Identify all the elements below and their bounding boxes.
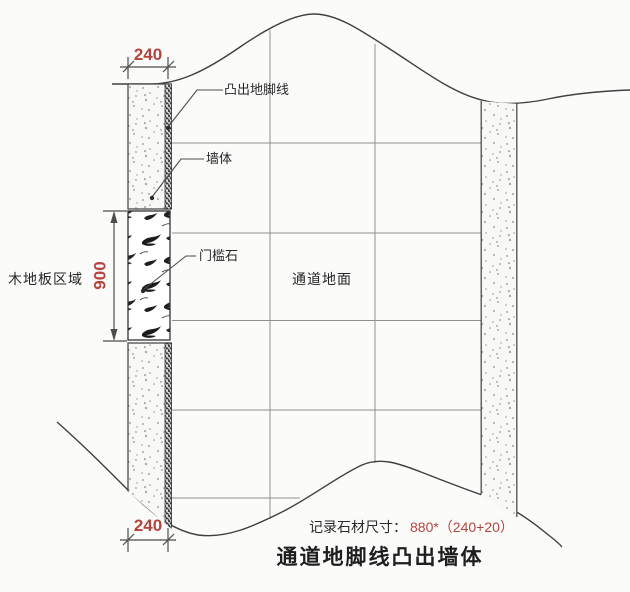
- skirting-strip-lower: [165, 343, 172, 527]
- skirting-strip-upper: [165, 84, 172, 209]
- stone-size-note: 记录石材尺寸： 880*（240+20）: [309, 517, 514, 537]
- cad-drawing-canvas: 240 240 900 凸出地脚线 墙体 门槛石 通道地面 木地板区域 记录石材…: [0, 0, 630, 592]
- dimension-top-value: 240: [125, 46, 171, 63]
- label-wall: 墙体: [206, 152, 232, 166]
- drawing-linework: [0, 0, 630, 592]
- dimension-height-value: 900: [92, 256, 109, 296]
- left-wall-upper: [128, 84, 172, 209]
- label-protruding-skirting: 凸出地脚线: [224, 83, 289, 97]
- leader-protruding-skirting: [168, 90, 223, 127]
- left-wall-lower: [128, 343, 172, 529]
- label-wood-floor-area: 木地板区域: [8, 272, 83, 287]
- stone-size-note-label: 记录石材尺寸：: [309, 517, 407, 537]
- drawing-title: 通道地脚线凸出墙体: [250, 541, 510, 571]
- threshold-stone: [128, 211, 170, 340]
- top-break-line: [112, 14, 630, 103]
- stone-size-note-value: 880*（240+20）: [410, 517, 514, 537]
- right-wall: [481, 100, 517, 519]
- dimension-bottom-value: 240: [125, 517, 171, 534]
- label-threshold-stone: 门槛石: [199, 249, 238, 263]
- label-corridor-floor: 通道地面: [292, 272, 352, 287]
